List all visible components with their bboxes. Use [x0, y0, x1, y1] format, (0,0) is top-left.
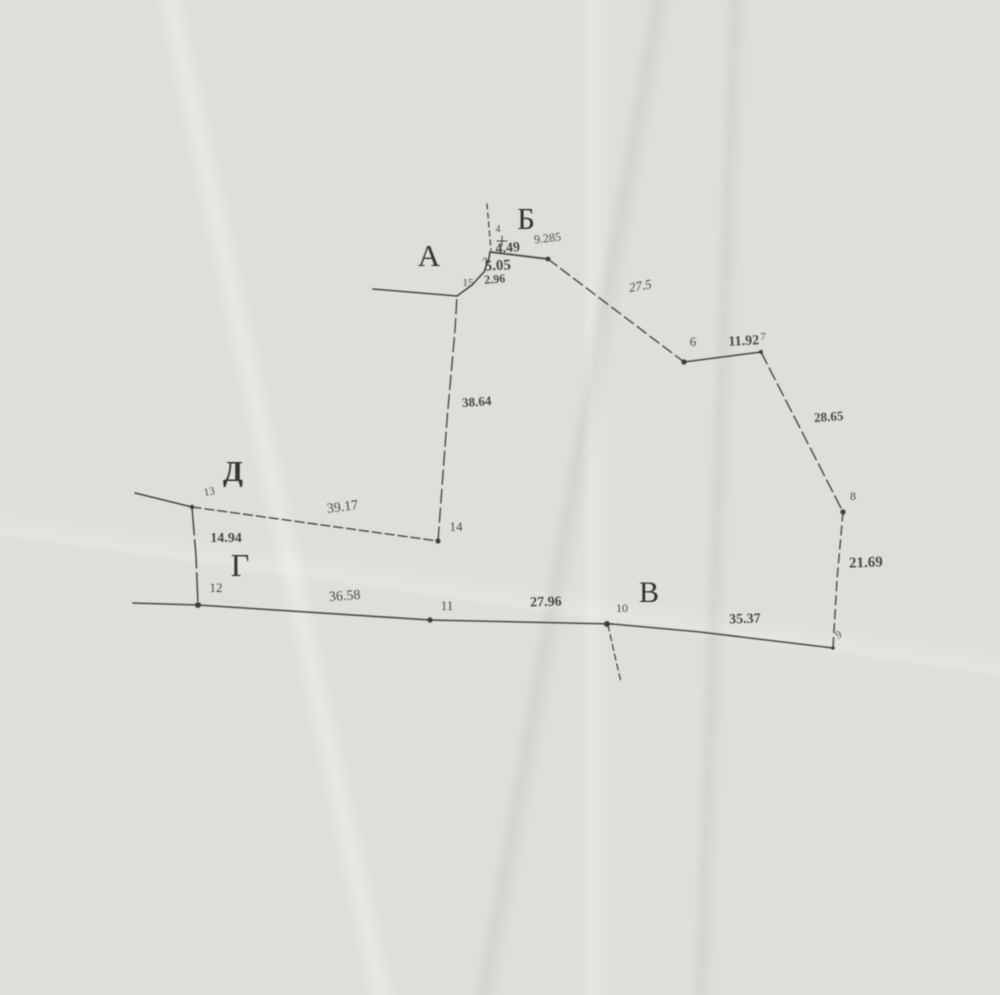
boundary-seg-35-37 [612, 624, 833, 648]
point-dot-8 [840, 509, 845, 514]
boundary-seg-14-94 [192, 507, 198, 605]
corner-letter-A: А [418, 238, 441, 273]
point-dot-6 [681, 359, 686, 364]
length-38-64: 38.64 [462, 393, 493, 410]
point-dot-11 [427, 617, 432, 622]
boundary-seg-21-69 [833, 512, 843, 648]
point-label-6: 6 [690, 334, 697, 349]
boundary-seg-28-65 [761, 352, 843, 512]
boundary-seg-27-5 [548, 259, 684, 362]
length-28-65: 28.65 [814, 408, 845, 425]
point-dot-9 [831, 646, 835, 650]
point-label-11: 11 [441, 598, 454, 613]
length-4-49: 4.49 [495, 240, 520, 257]
ink-layer: АБВГД44.499.2855.053152.9627.5611.92728.… [133, 201, 883, 682]
point-label-10: 10 [616, 601, 628, 615]
dashed-line-below-10 [608, 625, 621, 682]
point-label-15: 15 [463, 277, 475, 289]
length-9-285: 9.285 [533, 229, 562, 246]
dashed-line-top [487, 204, 491, 250]
survey-sketch-svg: АБВГД44.499.2855.053152.9627.5611.92728.… [0, 0, 1000, 995]
corner-letter-G: Г [231, 547, 250, 583]
boundary-seg-38-64 [438, 296, 457, 541]
point-label-13: 13 [203, 485, 217, 499]
length-39-17: 39.17 [326, 498, 359, 517]
length-27-5: 27.5 [628, 276, 654, 295]
point-label-7: 7 [760, 331, 766, 343]
point-label-4: 4 [496, 224, 501, 235]
point-label-9: 9 [834, 628, 845, 641]
boundary-seg-12-left [133, 603, 198, 605]
point-dot-5 [546, 257, 551, 262]
length-21-69: 21.69 [849, 554, 883, 571]
point-dot-12 [195, 602, 201, 608]
point-dot-13 [190, 505, 194, 509]
point-dot-14 [435, 538, 440, 543]
length-2-96: 2.96 [484, 271, 506, 286]
length-27-96: 27.96 [530, 594, 562, 610]
boundary-left-stub-A [373, 289, 457, 296]
point-dot-10 [604, 621, 610, 627]
boundary-seg-27-96 [430, 620, 612, 624]
boundary-seg-36-58 [198, 605, 430, 620]
point-label-8: 8 [850, 489, 856, 503]
length-11-92: 11.92 [728, 333, 759, 350]
corner-letter-V: В [639, 576, 659, 609]
length-36-58: 36.58 [329, 588, 361, 605]
corner-letter-D: Д [223, 456, 243, 488]
boundary-left-13 [135, 493, 192, 507]
length-35-37: 35.37 [729, 611, 761, 627]
scanned-survey-photo: АБВГД44.499.2855.053152.9627.5611.92728.… [0, 0, 1000, 995]
point-label-14: 14 [450, 519, 464, 534]
boundary-seg-11-92 [684, 352, 761, 362]
point-label-12: 12 [210, 580, 223, 595]
corner-letter-B: Б [517, 201, 535, 236]
length-14-94: 14.94 [210, 531, 242, 546]
point-dot-7 [759, 350, 763, 354]
